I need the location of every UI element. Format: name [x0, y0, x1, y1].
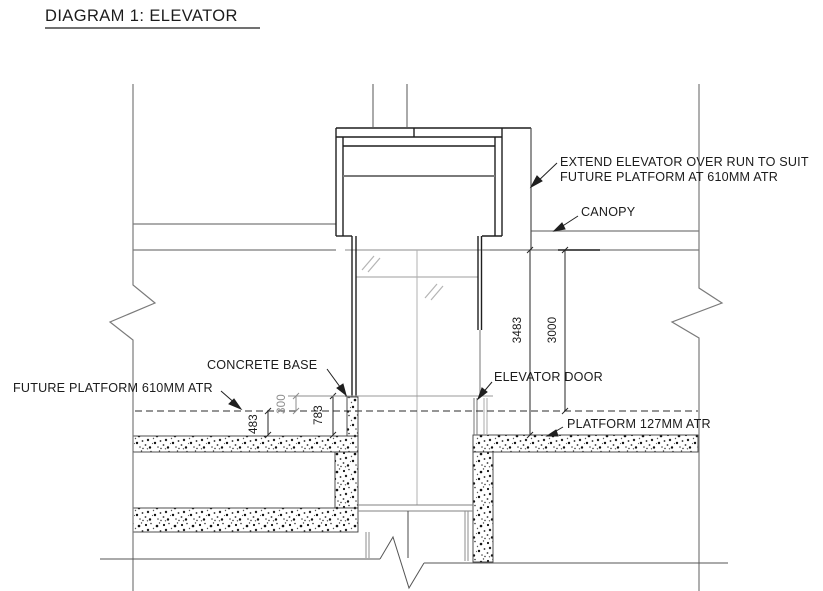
right-platform-slab	[473, 435, 698, 452]
platform-arrow	[547, 430, 558, 436]
left-door-jamb	[352, 236, 356, 397]
label-elevator-door: ELEVATOR DOOR	[494, 370, 603, 384]
right-pit-wall	[473, 452, 493, 562]
lower-floor-slab	[133, 508, 358, 532]
dim-3483: 3483	[511, 317, 524, 344]
shaft-break-mark	[380, 537, 424, 588]
label-concrete-base: CONCRETE BASE	[207, 358, 317, 372]
label-extend-overrun-line1: EXTEND ELEVATOR OVER RUN TO SUIT	[560, 155, 809, 169]
label-platform: PLATFORM 127MM ATR	[567, 417, 711, 431]
extend-overrun-arrow	[531, 176, 542, 187]
glass-hatch-marks	[362, 256, 443, 300]
car-floor-and-pit	[358, 505, 473, 561]
overrun-box	[336, 128, 531, 236]
page-title: DIAGRAM 1: ELEVATOR	[45, 7, 238, 25]
drawing-sheet: DIAGRAM 1: ELEVATOR EXTEND ELEVATOR OVER…	[0, 0, 823, 591]
door-bottom-guides	[474, 398, 487, 435]
ground-lines	[100, 537, 728, 588]
concrete-base-column	[347, 397, 358, 436]
dim-300: 300	[275, 394, 288, 414]
hoist-lines	[373, 84, 407, 127]
label-future-platform: FUTURE PLATFORM 610MM ATR	[13, 381, 213, 395]
dim-783: 783	[312, 405, 325, 425]
left-pit-wall	[335, 452, 358, 508]
concrete-base-arrow	[337, 384, 346, 395]
canopy-arrow	[554, 223, 565, 231]
label-extend-overrun-line2: FUTURE PLATFORM AT 610MM ATR	[560, 170, 778, 184]
dim-483: 483	[247, 414, 260, 434]
dim-3000: 3000	[546, 317, 559, 344]
future-platform-arrow	[229, 399, 241, 409]
cab-and-doors	[345, 236, 493, 505]
left-platform-slab	[133, 436, 358, 452]
elevator-section-drawing: DIAGRAM 1: ELEVATOR EXTEND ELEVATOR OVER…	[0, 0, 823, 591]
label-canopy: CANOPY	[581, 205, 636, 219]
